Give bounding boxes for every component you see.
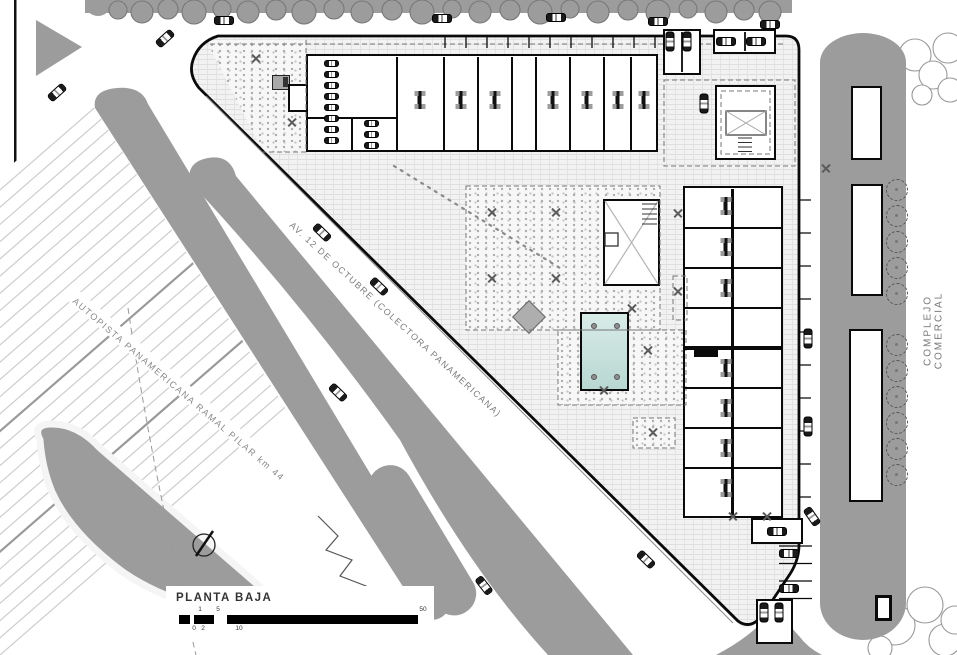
tree-icon xyxy=(886,438,908,460)
car-icon xyxy=(328,382,349,402)
building-wall xyxy=(685,387,782,389)
building-wall xyxy=(569,57,571,152)
tree-icon xyxy=(673,286,684,297)
car-icon xyxy=(546,13,566,22)
car-icon xyxy=(324,115,339,122)
scale-bar: 15500210 xyxy=(179,615,418,624)
car-icon xyxy=(155,28,176,48)
building-wall xyxy=(603,57,605,152)
building-wall xyxy=(396,57,398,152)
scale-tick-label: 50 xyxy=(419,606,426,613)
building-wall xyxy=(685,427,782,429)
tree-icon xyxy=(886,386,908,408)
tree-icon xyxy=(886,360,908,382)
pool-jet-icon xyxy=(591,374,597,380)
tree-icon xyxy=(287,117,298,128)
building-wall xyxy=(535,57,537,152)
building-wall xyxy=(694,350,718,357)
building-wall xyxy=(685,307,782,309)
car-icon xyxy=(432,14,452,23)
tree-icon xyxy=(627,303,638,314)
car-icon xyxy=(364,142,379,149)
title-panel: PLANTA BAJA 15500210 xyxy=(166,586,434,642)
desk-icon xyxy=(639,91,650,109)
tree-icon xyxy=(886,231,908,253)
pool-jet-icon xyxy=(614,323,620,329)
desk-icon xyxy=(721,279,732,297)
car-icon xyxy=(767,527,787,536)
desk-icon xyxy=(721,479,732,497)
site-plan-canvas: { "title": {"label": "PLANTA BAJA"}, "ro… xyxy=(0,0,957,655)
desk-icon xyxy=(721,238,732,256)
objects-layer xyxy=(0,0,957,655)
scale-tick-label: 1 xyxy=(198,606,202,613)
car-icon xyxy=(804,328,813,348)
desk-icon xyxy=(582,91,593,109)
desk-icon xyxy=(415,91,426,109)
tree-icon xyxy=(886,464,908,486)
building-wall xyxy=(477,57,479,152)
tree-icon xyxy=(487,207,498,218)
tree-icon xyxy=(251,53,262,64)
car-icon xyxy=(760,20,780,29)
tree-icon xyxy=(886,283,908,305)
car-icon xyxy=(779,549,799,558)
car-icon xyxy=(324,137,339,144)
scale-tick-label: 2 xyxy=(201,625,205,632)
car-icon xyxy=(364,131,379,138)
tree-icon xyxy=(643,345,654,356)
car-icon xyxy=(324,93,339,100)
car-icon xyxy=(364,120,379,127)
car-icon xyxy=(648,17,668,26)
building-wall xyxy=(443,57,445,152)
building-wall xyxy=(351,118,353,151)
tree-icon xyxy=(551,273,562,284)
tree-icon xyxy=(886,412,908,434)
car-icon xyxy=(683,31,692,51)
car-icon xyxy=(716,37,736,46)
desk-icon xyxy=(613,91,624,109)
tree-icon xyxy=(886,257,908,279)
car-icon xyxy=(746,37,766,46)
tree-icon xyxy=(487,273,498,284)
car-icon xyxy=(760,602,769,622)
building-wall xyxy=(685,227,782,229)
building-wall xyxy=(630,57,632,152)
scale-bar-segment xyxy=(190,615,194,624)
car-icon xyxy=(474,574,493,595)
car-icon xyxy=(775,602,784,622)
car-icon xyxy=(324,71,339,78)
building-wall xyxy=(685,467,782,469)
car-icon xyxy=(636,549,657,569)
scale-tick-label: 5 xyxy=(216,606,220,613)
building-wall xyxy=(511,57,513,152)
building-wall xyxy=(685,346,782,350)
tree-icon xyxy=(673,208,684,219)
tree-icon xyxy=(886,334,908,356)
car-icon xyxy=(312,222,333,242)
car-icon xyxy=(700,93,709,113)
desk-icon xyxy=(456,91,467,109)
desk-icon xyxy=(548,91,559,109)
desk-icon xyxy=(721,197,732,215)
car-icon xyxy=(666,31,675,51)
building-wall xyxy=(308,117,396,119)
plan-title: PLANTA BAJA xyxy=(176,592,272,604)
car-icon xyxy=(369,276,390,296)
pool-jet-icon xyxy=(614,374,620,380)
scale-bar-segment xyxy=(214,615,227,624)
building-wall xyxy=(685,267,782,269)
car-icon xyxy=(324,60,339,67)
car-icon xyxy=(214,16,234,25)
tree-icon xyxy=(551,207,562,218)
car-icon xyxy=(779,584,799,593)
car-icon xyxy=(804,416,813,436)
car-icon xyxy=(324,82,339,89)
desk-icon xyxy=(721,439,732,457)
tree-icon xyxy=(648,427,659,438)
car-icon xyxy=(324,104,339,111)
car-icon xyxy=(324,126,339,133)
tree-icon xyxy=(886,205,908,227)
pool-jet-icon xyxy=(591,323,597,329)
tree-icon xyxy=(762,511,773,522)
tree-icon xyxy=(886,179,908,201)
desk-icon xyxy=(721,399,732,417)
car-icon xyxy=(47,82,68,102)
commercial-complex-label: COMPLEJO COMERCIAL xyxy=(923,266,936,396)
tree-icon xyxy=(728,511,739,522)
scale-tick-label: 0 xyxy=(192,625,196,632)
tree-icon xyxy=(821,163,832,174)
car-icon xyxy=(803,505,822,527)
desk-icon xyxy=(721,359,732,377)
desk-icon xyxy=(490,91,501,109)
tree-icon xyxy=(599,385,610,396)
scale-tick-label: 10 xyxy=(235,625,242,632)
